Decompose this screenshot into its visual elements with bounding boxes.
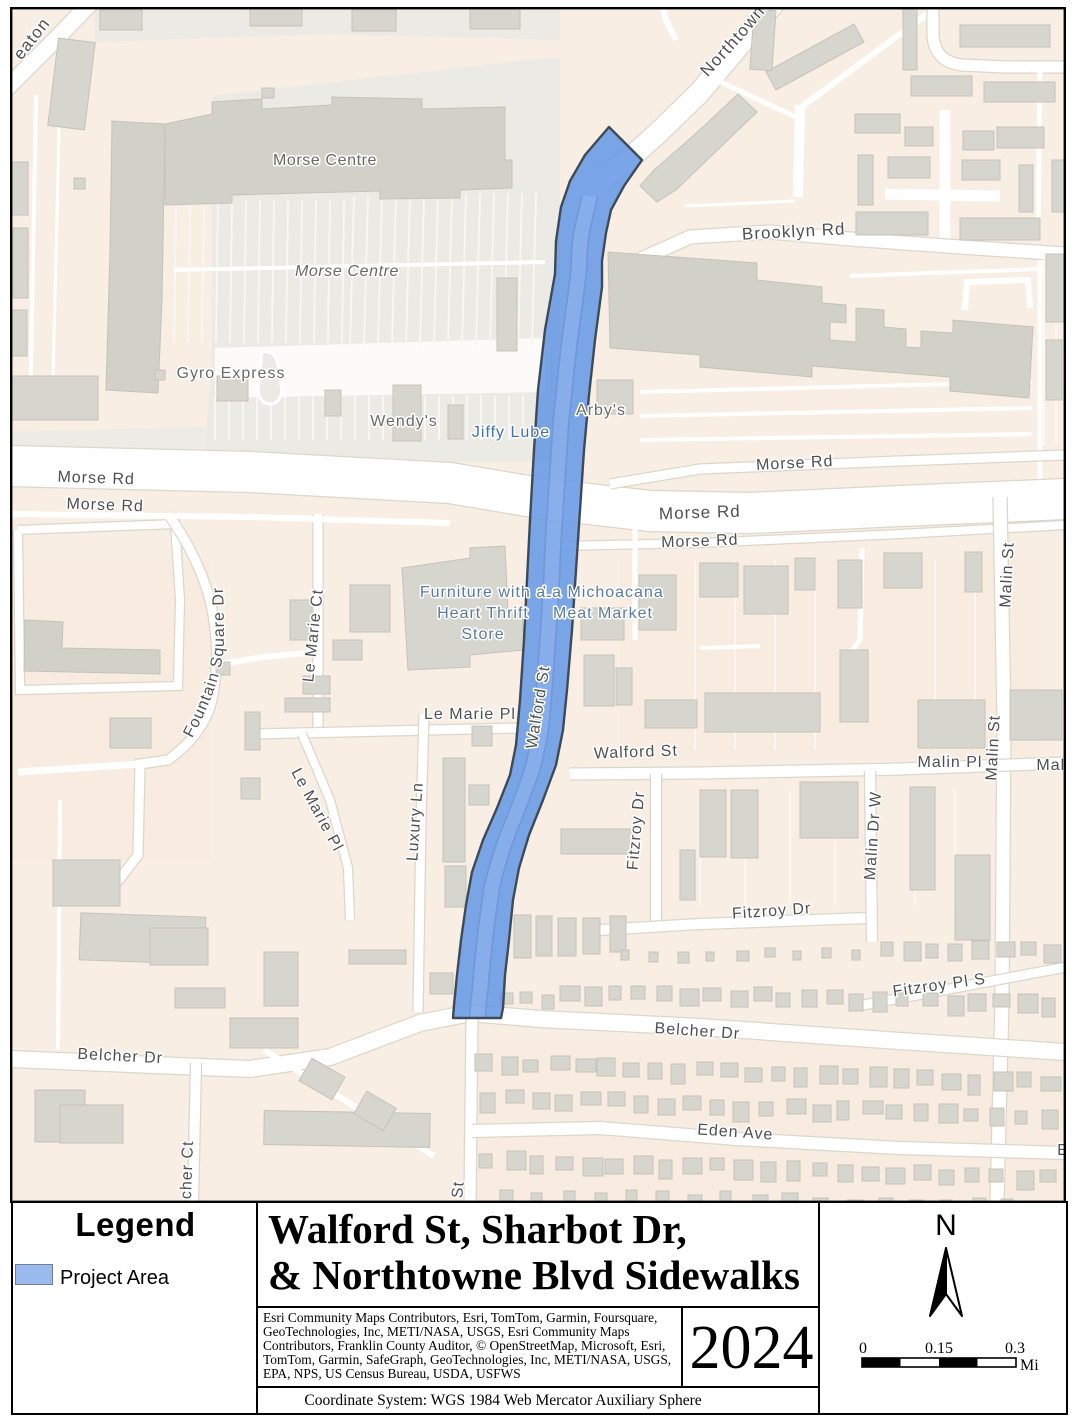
- svg-text:Malin St: Malin St: [983, 714, 1003, 781]
- svg-text:Morse Rd: Morse Rd: [66, 496, 144, 516]
- svg-text:Mi: Mi: [1020, 1357, 1039, 1374]
- svg-text:Heart Thrift: Heart Thrift: [437, 605, 529, 622]
- svg-text:Morse Rd: Morse Rd: [659, 502, 741, 524]
- svg-text:0: 0: [859, 1340, 867, 1357]
- svg-text:cher Ct: cher Ct: [178, 1140, 197, 1199]
- svg-text:0.15: 0.15: [925, 1340, 953, 1357]
- svg-text:Malin Pl: Malin Pl: [918, 754, 983, 771]
- svg-text:Morse Rd: Morse Rd: [661, 532, 739, 552]
- svg-text:Meat Market: Meat Market: [553, 605, 653, 622]
- svg-text:Furniture with a: Furniture with a: [420, 584, 546, 601]
- svg-text:Store: Store: [461, 626, 504, 643]
- svg-text:Gyro Express: Gyro Express: [177, 365, 286, 382]
- svg-text:Morse Rd: Morse Rd: [57, 469, 135, 489]
- svg-text:Le Marie Pl: Le Marie Pl: [424, 706, 516, 723]
- svg-text:Malin St: Malin St: [997, 541, 1017, 608]
- svg-text:Malin: Malin: [1036, 757, 1066, 774]
- svg-text:Walford St: Walford St: [594, 743, 679, 763]
- svg-text:La Michoacana: La Michoacana: [542, 584, 664, 601]
- svg-text:0.3: 0.3: [1005, 1340, 1025, 1357]
- svg-text:St: St: [449, 1180, 467, 1199]
- svg-text:Arby's: Arby's: [576, 402, 626, 419]
- svg-text:Morse Centre: Morse Centre: [273, 152, 377, 169]
- svg-text:Morse Centre: Morse Centre: [295, 263, 399, 280]
- svg-text:Wendy's: Wendy's: [370, 413, 438, 430]
- svg-text:Jiffy Lube: Jiffy Lube: [472, 424, 550, 441]
